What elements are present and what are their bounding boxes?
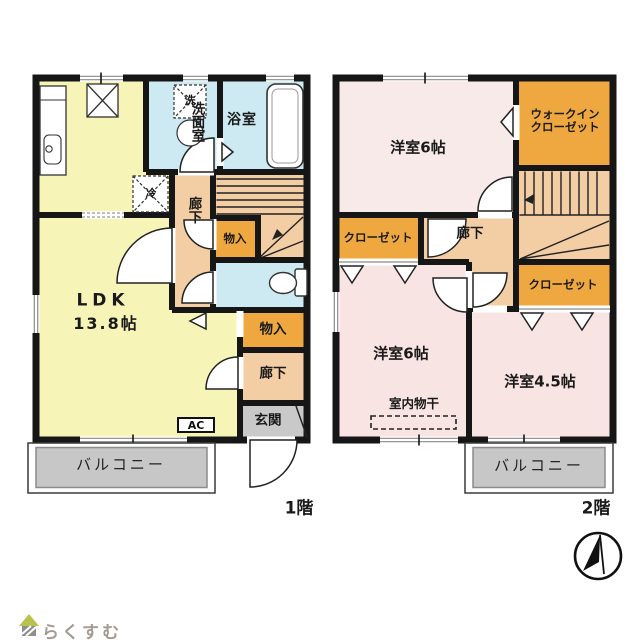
- fridge-mark-label: 冷: [146, 188, 157, 200]
- washer-mark-label: 洗: [185, 95, 196, 107]
- compass-icon: [575, 533, 621, 579]
- bedroom-se-label: 洋室4.5帖: [504, 374, 576, 391]
- storage-stairs-label: 物入: [224, 233, 247, 246]
- balcony-f1-label: バルコニー: [76, 457, 166, 474]
- floor1-plan: [28, 73, 307, 494]
- balcony-f2-label: バルコニー: [494, 458, 584, 475]
- walk-in-closet-line1: ウォークイン: [531, 108, 600, 121]
- closet-east-label: クローゼット: [529, 279, 598, 292]
- walk-in-closet-label: ウォークイン クローゼット: [531, 108, 600, 134]
- logo-house-icon: [19, 614, 39, 636]
- walk-in-closet-line2: クローゼット: [531, 121, 600, 134]
- indoor-drying-label: 室内物干: [389, 397, 439, 411]
- floor1-label: 1階: [285, 499, 314, 518]
- closet-west-label: クローゼット: [344, 232, 413, 245]
- entrance-label: 玄関: [255, 413, 282, 428]
- ac-unit-box: AC: [177, 417, 215, 433]
- hallway-center-label: 廊下: [185, 197, 200, 224]
- kitchen-counter-opening: [82, 211, 124, 219]
- kitchen-counter: [40, 86, 66, 175]
- hallway-south-label: 廊下: [260, 366, 287, 381]
- bedroom-sw-label: 洋室6帖: [373, 346, 428, 363]
- bathroom-label: 浴室: [227, 113, 257, 129]
- ac-unit-label: AC: [188, 419, 205, 432]
- washroom-label: 洗面室: [188, 102, 203, 143]
- bedroom-nw-label: 洋室6帖: [390, 140, 445, 157]
- floor2-label: 2階: [582, 499, 611, 518]
- range-box-icon: [87, 84, 118, 117]
- storage-south-label: 物入: [260, 322, 287, 337]
- hallway-f2-label: 廊下: [457, 226, 484, 241]
- ldk-size-label: 13.8帖: [73, 315, 138, 333]
- bathtub: [267, 84, 303, 168]
- floorplan-image: LDK 13.8帖 洗面室 浴室 廊下 物入 物入 廊下 玄関 AC 洗 冷 バ…: [0, 0, 640, 640]
- ldk-label: LDK: [76, 291, 129, 310]
- logo-text: らくすむ: [42, 618, 122, 640]
